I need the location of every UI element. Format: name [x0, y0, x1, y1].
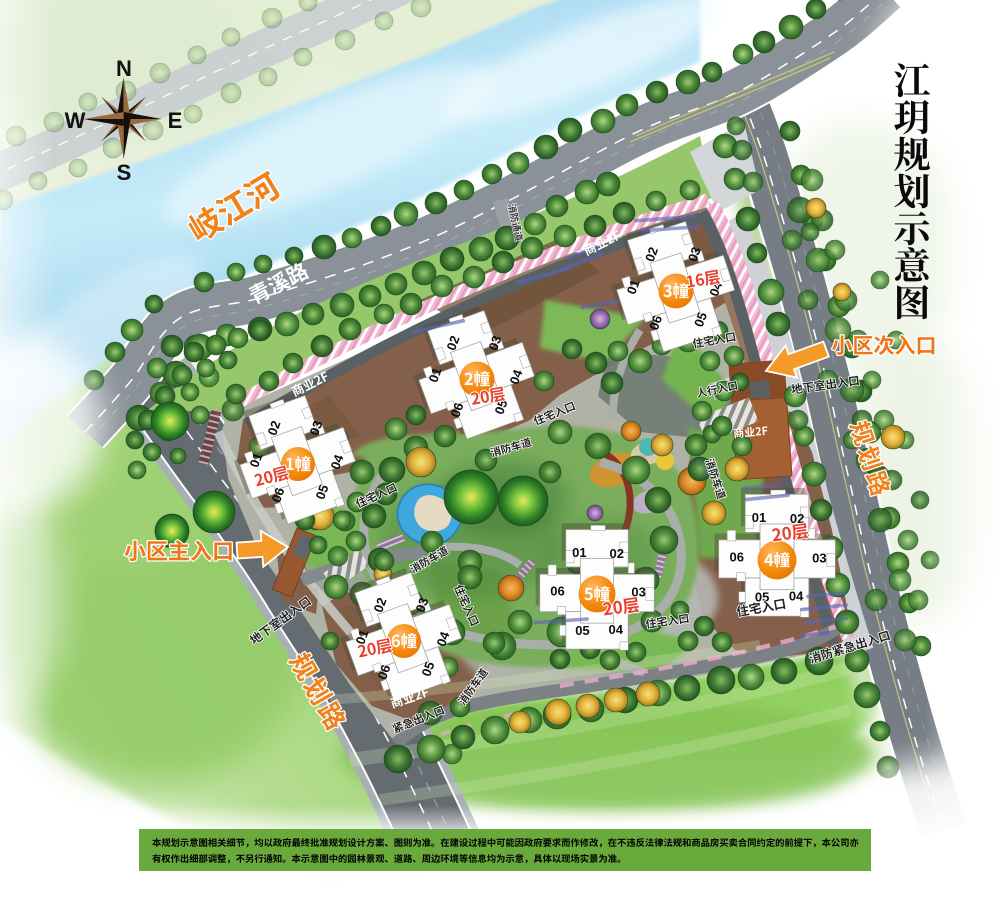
- svg-text:06: 06: [550, 583, 564, 598]
- svg-text:05: 05: [575, 623, 589, 638]
- svg-text:W: W: [65, 108, 86, 133]
- svg-text:04: 04: [789, 589, 804, 604]
- svg-text:04: 04: [608, 622, 623, 637]
- svg-text:E: E: [168, 108, 183, 133]
- svg-text:06: 06: [729, 549, 743, 564]
- svg-text:S: S: [117, 160, 132, 185]
- svg-text:01: 01: [752, 510, 766, 525]
- svg-text:02: 02: [610, 546, 624, 561]
- svg-text:03: 03: [812, 550, 826, 565]
- svg-text:N: N: [116, 56, 132, 81]
- svg-text:01: 01: [572, 545, 586, 560]
